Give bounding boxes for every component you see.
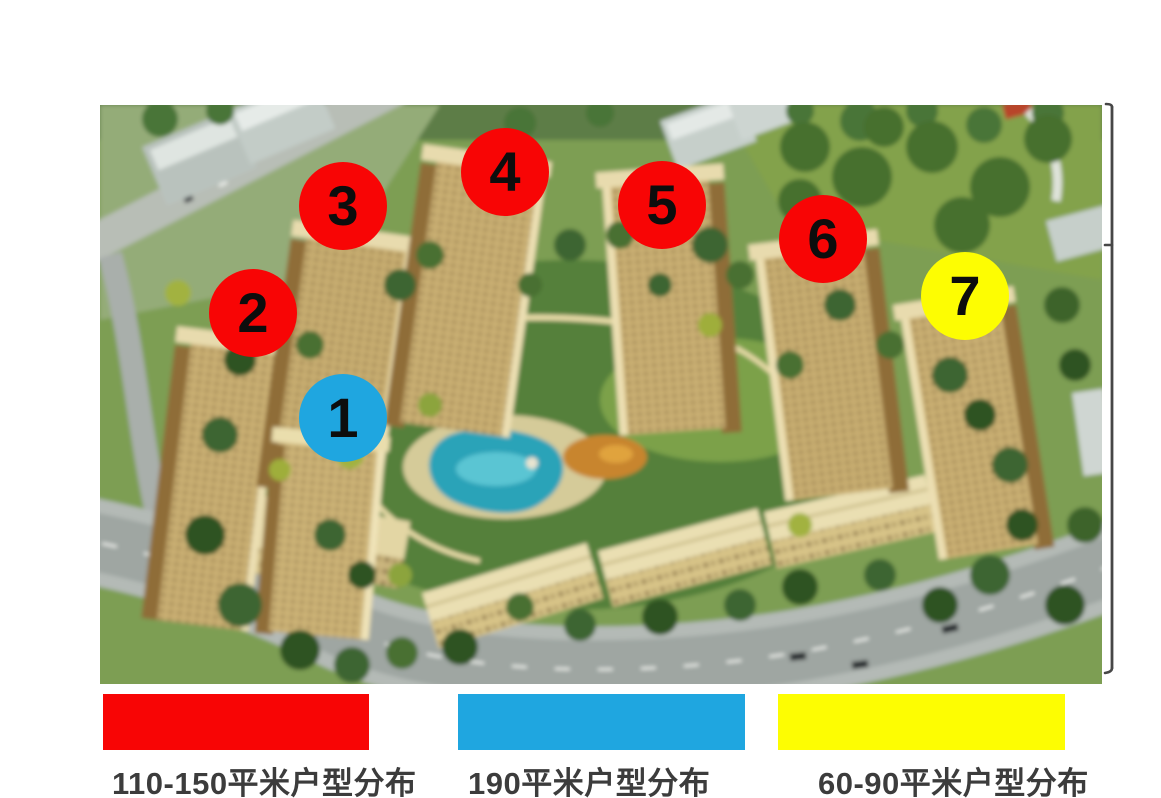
legend-item-blue: 190平米户型分布 bbox=[458, 694, 745, 798]
legend-swatch-yellow bbox=[778, 694, 1065, 750]
legend-swatch-red bbox=[103, 694, 369, 750]
legend-item-yellow: 60-90平米户型分布 bbox=[778, 694, 1065, 798]
legend-label: 110-150平米户型分布 bbox=[103, 758, 369, 798]
page: 1234567 110-150平米户型分布190平米户型分布60-90平米户型分… bbox=[0, 0, 1161, 798]
site-aerial-photo bbox=[100, 105, 1102, 684]
right-bracket-annotation bbox=[1100, 98, 1126, 682]
legend-swatch-blue bbox=[458, 694, 745, 750]
legend-label: 60-90平米户型分布 bbox=[778, 758, 1065, 798]
legend-item-red: 110-150平米户型分布 bbox=[103, 694, 369, 798]
legend-label: 190平米户型分布 bbox=[458, 758, 745, 798]
